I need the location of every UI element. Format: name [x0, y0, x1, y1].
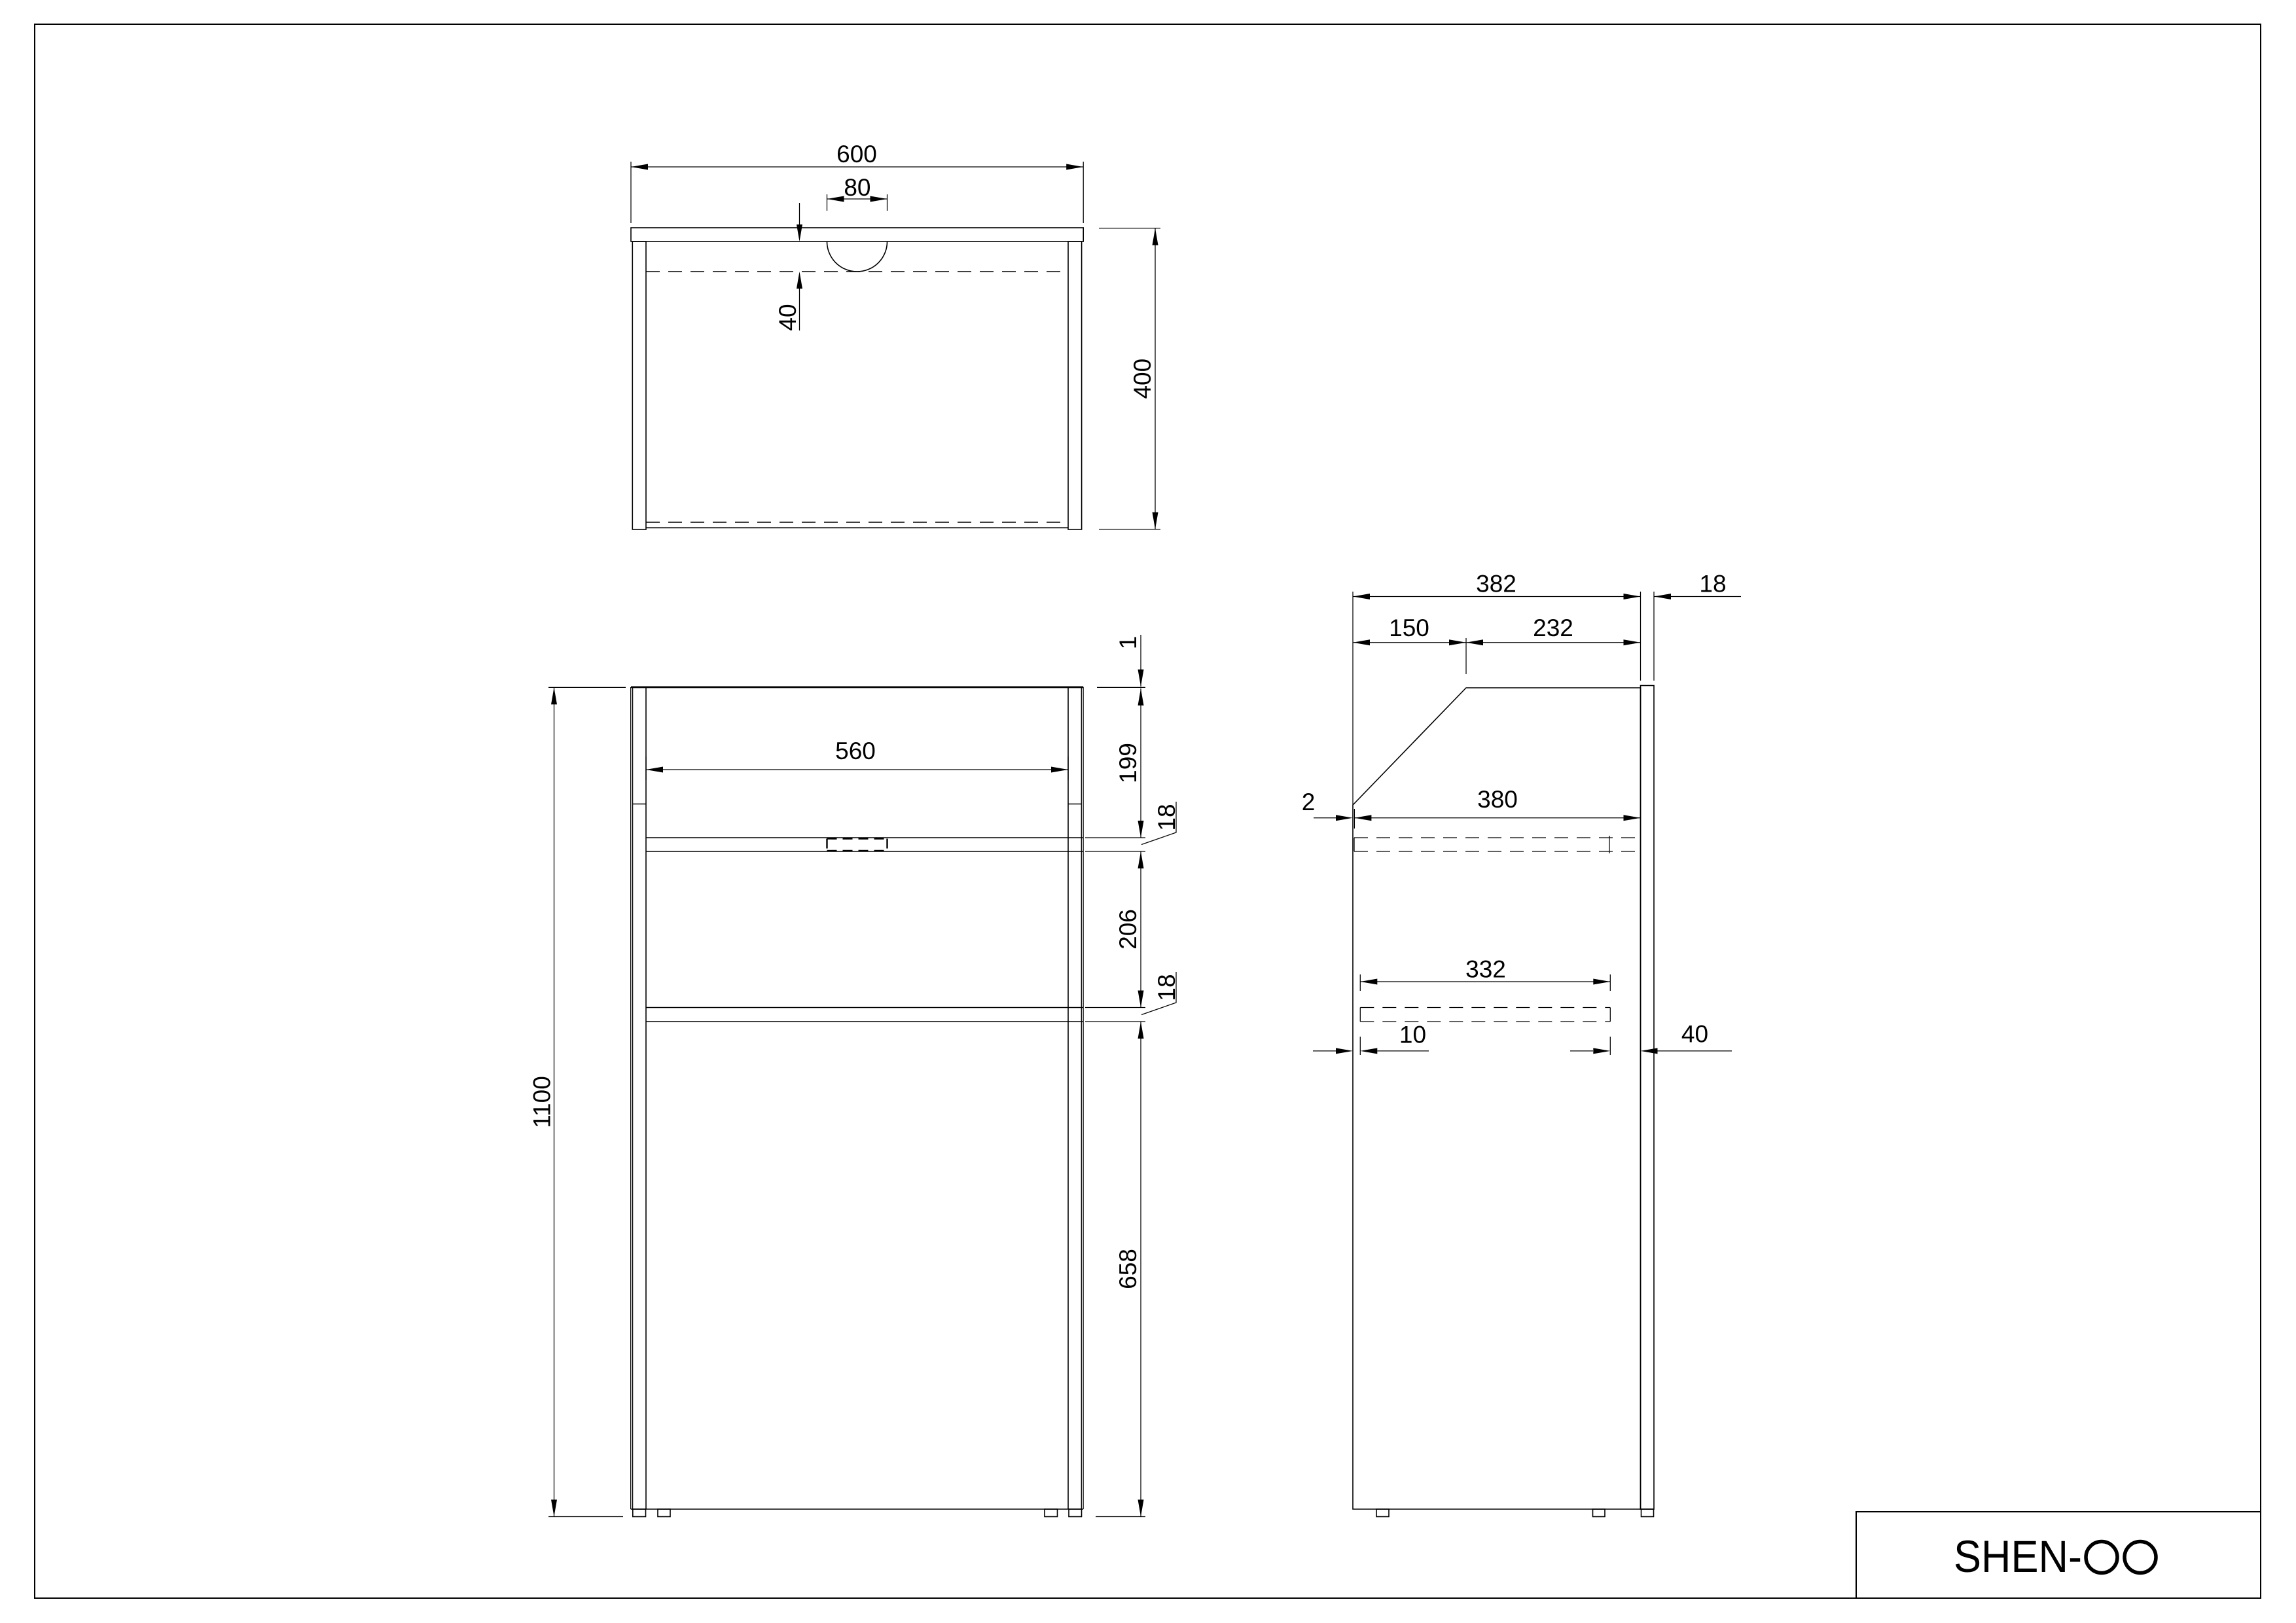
svg-text:SHEN-: SHEN- [1954, 1531, 2082, 1582]
svg-text:199: 199 [1115, 743, 1141, 783]
svg-text:40: 40 [774, 304, 801, 330]
svg-text:18: 18 [1153, 974, 1180, 1001]
svg-text:1100: 1100 [528, 1076, 555, 1128]
svg-text:206: 206 [1115, 909, 1141, 950]
svg-text:332: 332 [1465, 956, 1506, 983]
svg-text:150: 150 [1389, 615, 1429, 641]
svg-text:380: 380 [1477, 786, 1518, 813]
svg-text:40: 40 [1681, 1021, 1708, 1048]
svg-text:80: 80 [844, 174, 870, 201]
svg-text:10: 10 [1399, 1022, 1426, 1048]
svg-text:400: 400 [1129, 359, 1156, 399]
svg-text:2: 2 [1302, 789, 1316, 815]
svg-text:658: 658 [1115, 1249, 1141, 1289]
svg-text:600: 600 [836, 141, 877, 168]
svg-text:1: 1 [1115, 636, 1141, 650]
svg-text:560: 560 [835, 738, 876, 764]
svg-text:232: 232 [1533, 615, 1573, 641]
svg-text:18: 18 [1699, 571, 1726, 597]
svg-text:382: 382 [1476, 571, 1516, 597]
svg-text:18: 18 [1153, 804, 1180, 830]
